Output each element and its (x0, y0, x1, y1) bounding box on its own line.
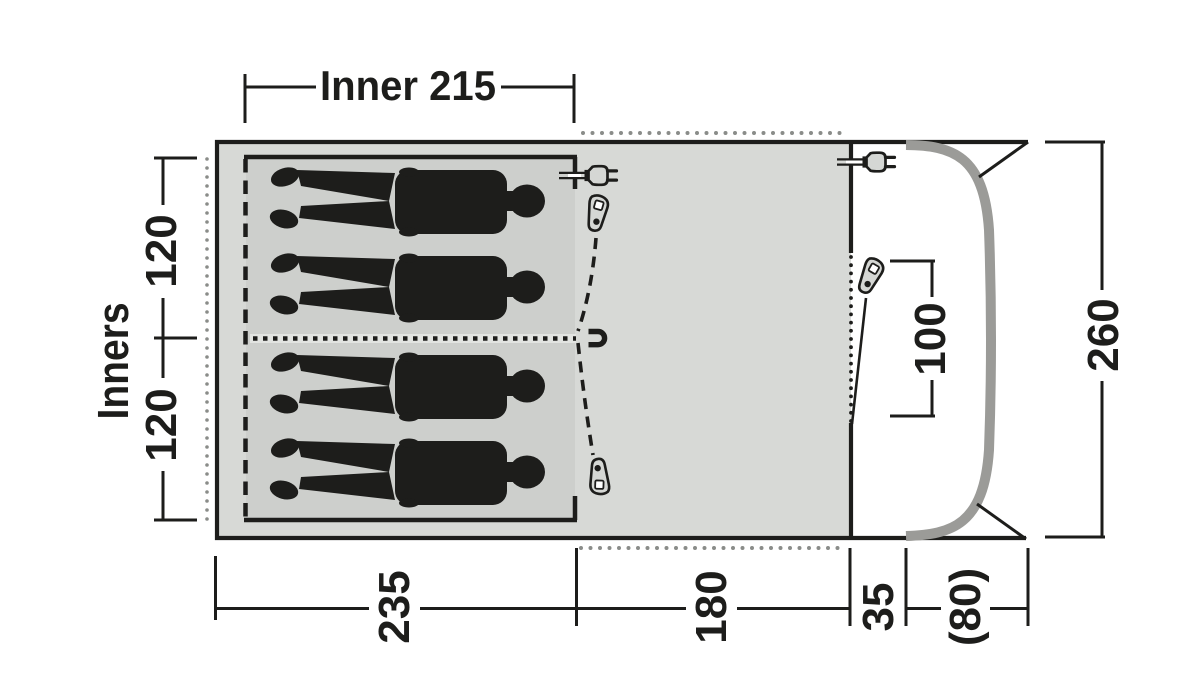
svg-text:(80): (80) (941, 568, 990, 646)
svg-text:35: 35 (854, 583, 903, 632)
svg-text:260: 260 (1079, 298, 1128, 371)
svg-text:120: 120 (137, 388, 186, 461)
svg-text:Inners: Inners (89, 303, 138, 420)
svg-text:100: 100 (906, 302, 955, 375)
svg-text:Inner 215: Inner 215 (320, 62, 496, 109)
svg-text:180: 180 (687, 570, 736, 643)
svg-text:120: 120 (137, 214, 186, 287)
svg-text:235: 235 (370, 570, 419, 643)
